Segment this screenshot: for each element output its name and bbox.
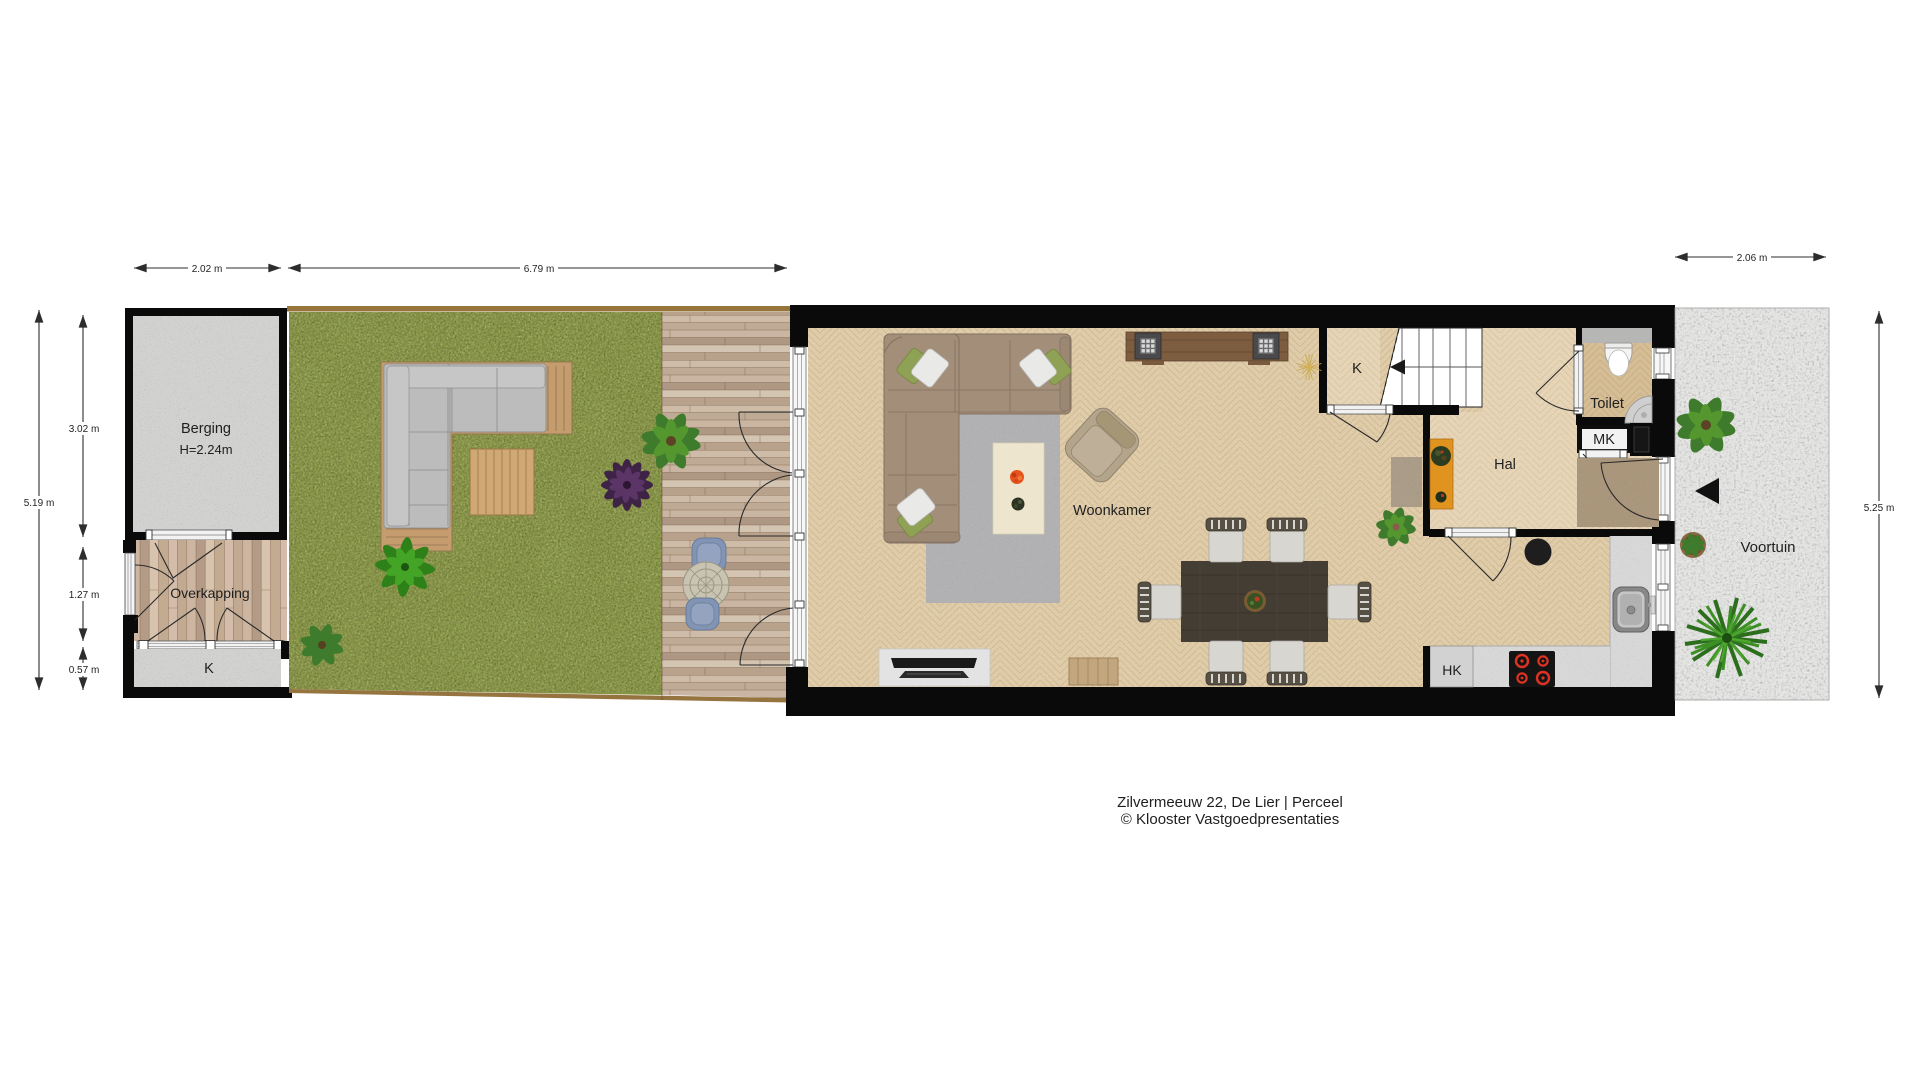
svg-text:1.27 m: 1.27 m — [69, 590, 100, 601]
svg-text:Zilvermeeuw 22, De Lier | Perc: Zilvermeeuw 22, De Lier | Perceel — [1117, 794, 1343, 811]
svg-text:Voortuin: Voortuin — [1740, 539, 1795, 556]
svg-text:5.25 m: 5.25 m — [1864, 503, 1895, 514]
svg-text:0.57 m: 0.57 m — [69, 665, 100, 676]
svg-text:2.06 m: 2.06 m — [1737, 253, 1768, 264]
svg-text:Woonkamer: Woonkamer — [1073, 503, 1151, 519]
svg-text:5.19 m: 5.19 m — [24, 498, 55, 509]
svg-text:H=2.24m: H=2.24m — [179, 442, 232, 457]
svg-text:K: K — [204, 661, 214, 677]
svg-text:© Klooster Vastgoedpresentatie: © Klooster Vastgoedpresentaties — [1121, 811, 1339, 828]
svg-text:3.02 m: 3.02 m — [69, 424, 100, 435]
svg-text:MK: MK — [1593, 432, 1615, 448]
svg-text:HK: HK — [1442, 662, 1462, 678]
svg-text:Overkapping: Overkapping — [170, 585, 249, 601]
svg-text:6.79 m: 6.79 m — [524, 264, 555, 275]
svg-text:Toilet: Toilet — [1590, 396, 1624, 412]
svg-text:2.02 m: 2.02 m — [192, 264, 223, 275]
svg-text:Berging: Berging — [181, 421, 231, 437]
svg-text:K: K — [1352, 360, 1362, 377]
svg-text:Hal: Hal — [1494, 457, 1516, 473]
